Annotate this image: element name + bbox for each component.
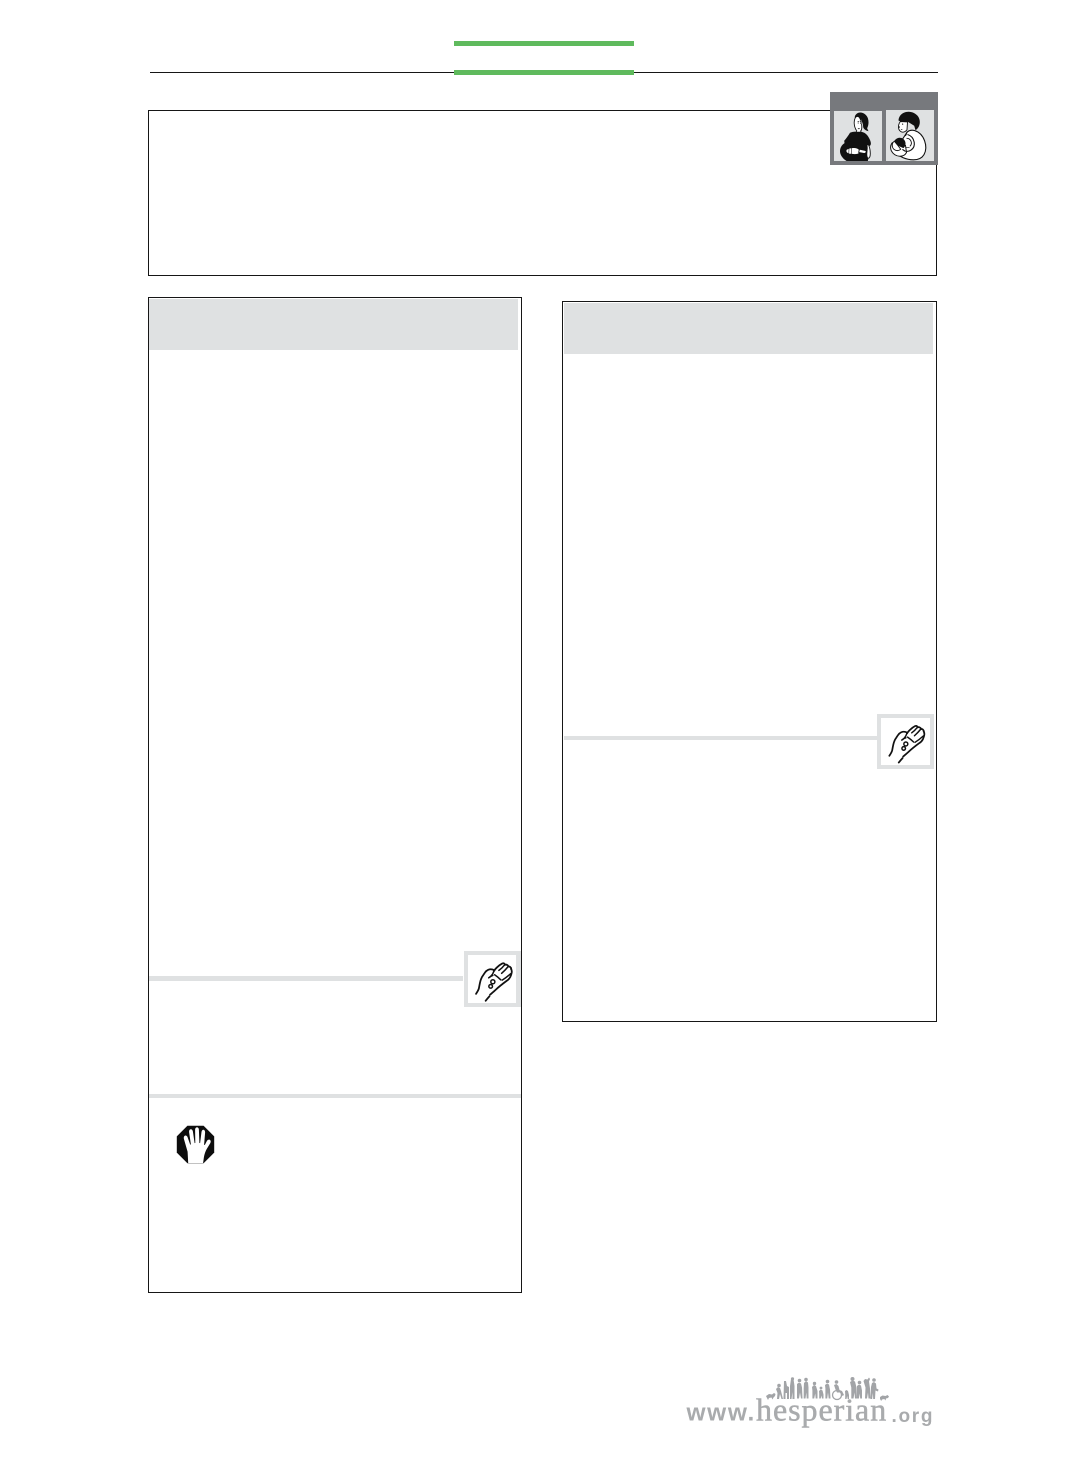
svg-text:.org: .org xyxy=(892,1406,935,1427)
svg-text:hesperian: hesperian xyxy=(756,1392,887,1428)
svg-text:www.: www. xyxy=(686,1400,756,1427)
